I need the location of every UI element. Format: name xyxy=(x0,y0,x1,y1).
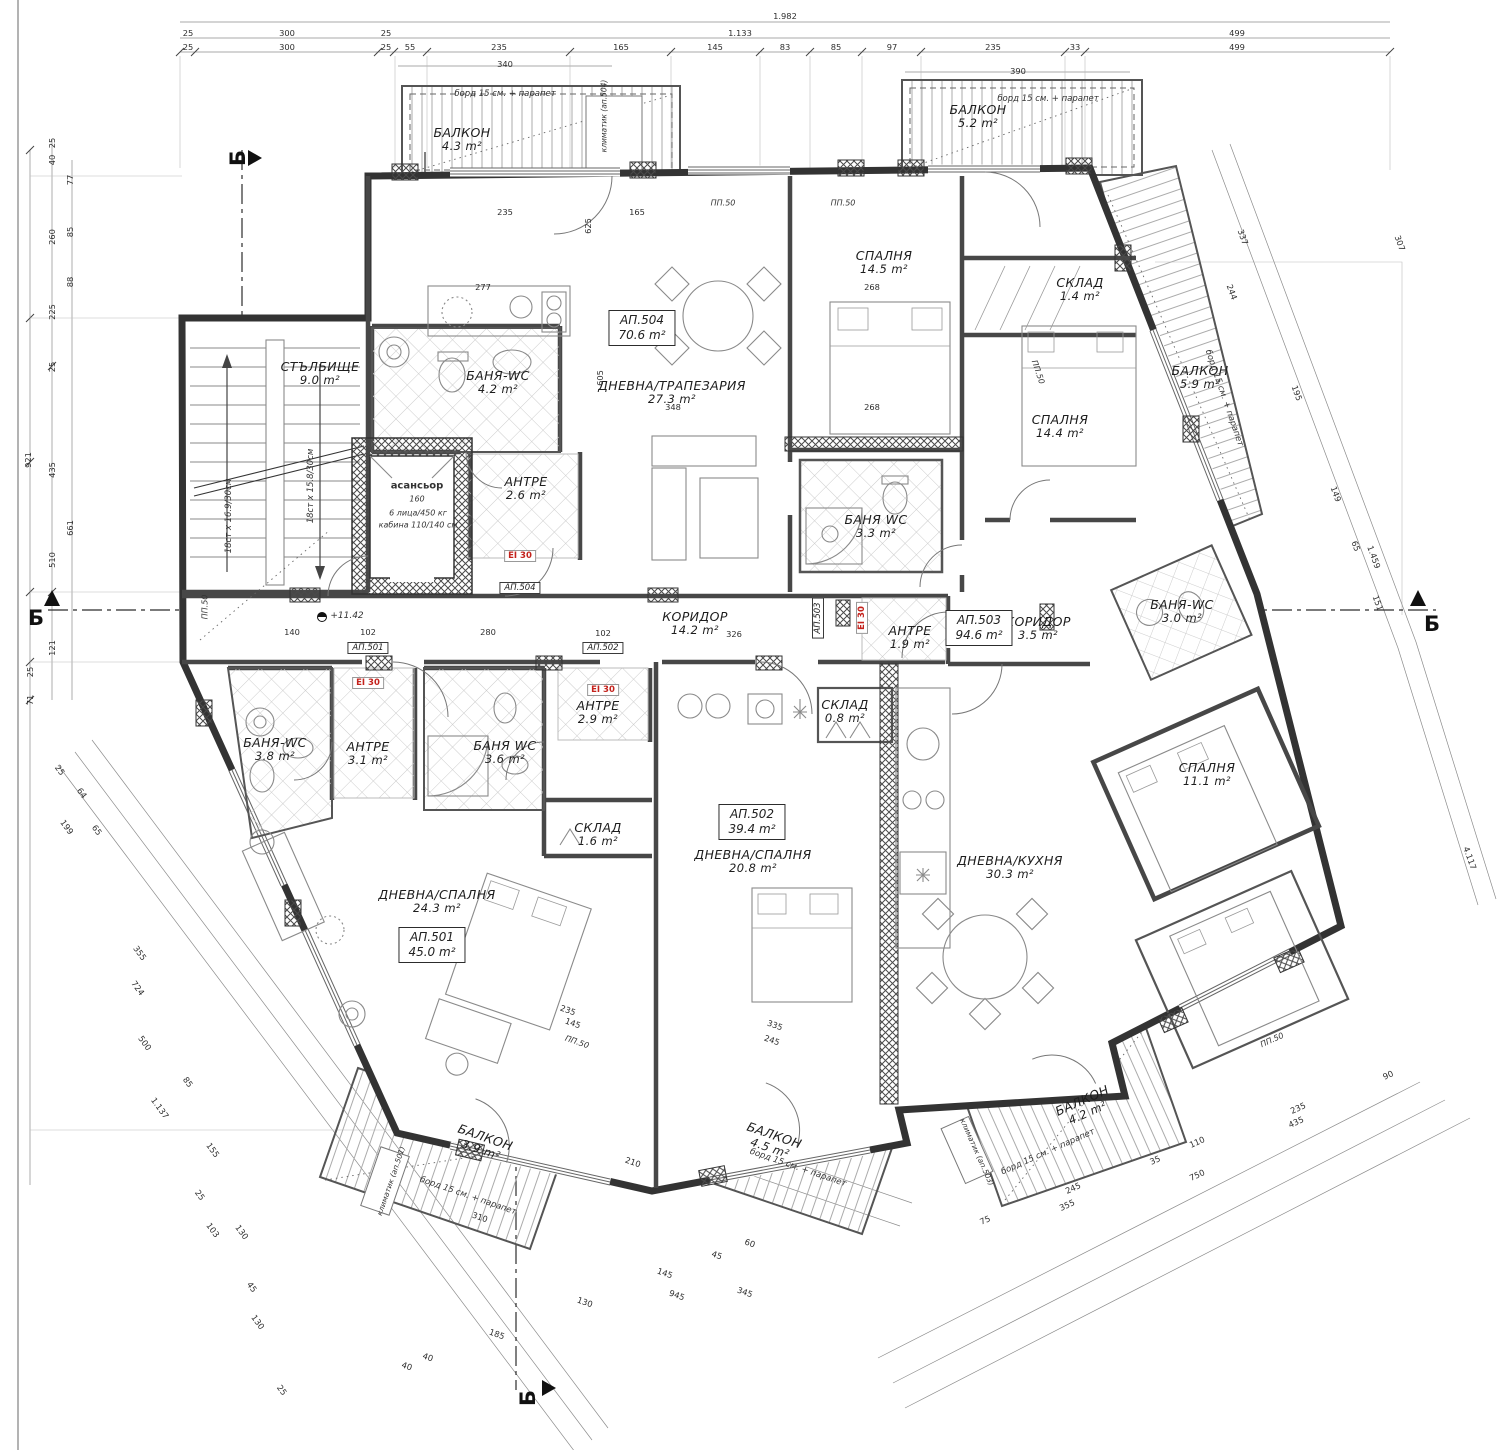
floor-plan: БАЛКОН4.3 m²БАЛКОН5.2 m²БАЛКОН5.9 m²СТЪЛ… xyxy=(0,0,1500,1450)
level-marker xyxy=(318,613,327,622)
section-arrow-left xyxy=(44,590,60,606)
ac-unit-box xyxy=(586,96,642,170)
floor-plan-drawing xyxy=(0,0,1500,1450)
elevator xyxy=(352,438,472,594)
section-arrow-right xyxy=(1410,590,1426,606)
section-arrow-top xyxy=(248,150,262,166)
